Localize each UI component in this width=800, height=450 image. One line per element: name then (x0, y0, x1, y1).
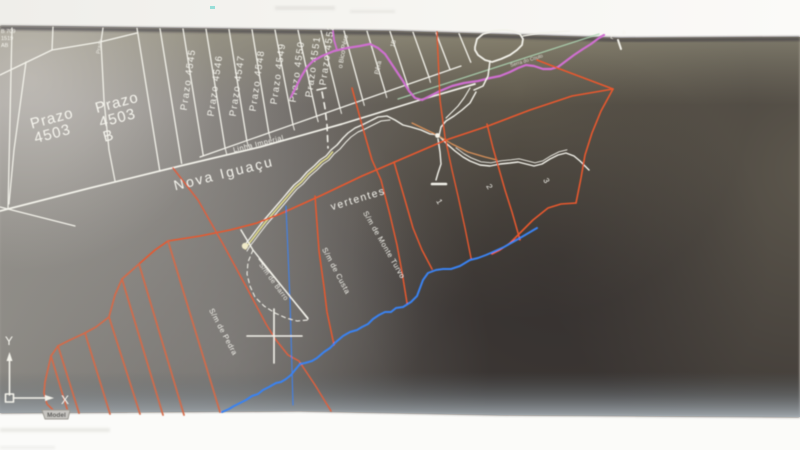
svg-text:1519: 1519 (1, 36, 13, 42)
svg-text:AB: AB (1, 43, 9, 49)
svg-text:X: X (61, 393, 69, 407)
svg-text:Model: Model (47, 412, 66, 419)
svg-text:Y: Y (5, 334, 13, 348)
svg-text:B 709: B 709 (1, 29, 15, 35)
